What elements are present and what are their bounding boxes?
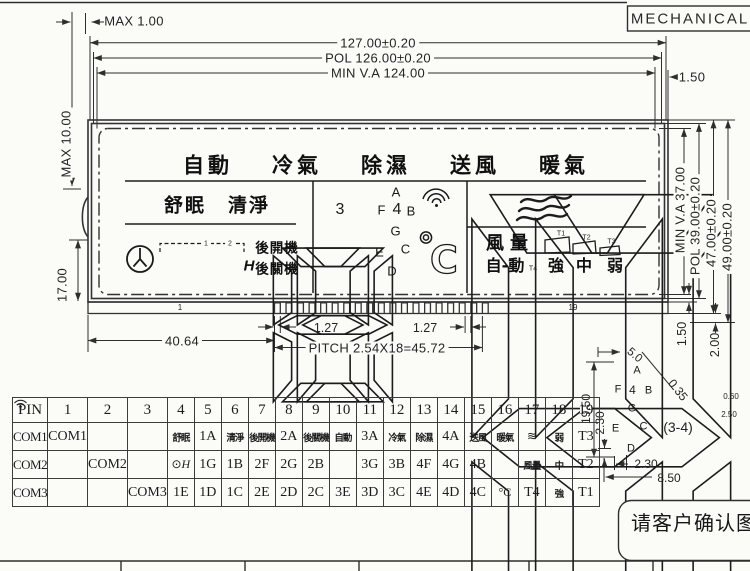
pin-table-row: COM1COM1舒眠1A清淨後開機2A後關機自動3A冷氣除濕4A送風暖氣≋弱T3 [13,423,600,451]
pin-header-cell: 18 [545,398,572,423]
pin-cell: 舒眠 [167,423,194,451]
pin-cell: 強 [545,479,572,507]
pin-header-cell: 12 [383,398,410,423]
dim-left-height: 17.00 [56,265,69,305]
pin-cell: 1A [194,423,221,451]
timer-tag-2: 2 [225,241,235,248]
pin-cell [127,423,167,451]
dim-bottom-gap-b: 2.00 [709,333,722,357]
pin-1-label: 1 [178,304,182,312]
dim-pol-height: POL 39.00±0.20 [689,174,702,278]
pin-header-cell: 8 [275,398,302,423]
t3-box [600,246,620,256]
dim-max-height: MAX 10.00 [60,107,73,180]
pin-header-cell: 5 [194,398,221,423]
t3-label: T3 [607,239,615,246]
wifi-icon [423,189,449,207]
pin-row-header: COM2 [13,451,48,479]
t1-box [545,237,570,253]
pin-header-cell: 14 [437,398,464,423]
dim-glass-height: 47.00±0.20 [705,196,718,270]
pin-row-header: COM3 [13,479,48,507]
pin-cell [48,451,88,479]
pin-cell: 後開機 [248,423,275,451]
detail-seg-e: E [612,424,619,435]
confirm-note: 请客户确认图 [631,513,750,533]
pin-cell: 除濕 [410,423,437,451]
detail-seg-c: C [640,422,648,433]
pin-cell: 1B [221,451,248,479]
dim-pol-width: POL 126.00±0.20 [322,52,434,65]
pin-cell: 4G [437,451,464,479]
pin-cell: T2 [572,451,599,479]
pin-cell: ≋ [518,423,545,451]
pin-cell: 1C [221,479,248,507]
pin-cell: 送風 [464,423,491,451]
pin-header-cell: 16 [491,398,518,423]
degree-celsius-icon: C [420,232,458,282]
dim-max-thickness: MAX 1.00 [104,15,163,28]
dim-overall-width: 127.00±0.20 [337,36,419,49]
mechanical-drawing-sheet: C MECHANICAL MAX 1.00 127.00±0.20 POL 12… [0,0,750,571]
fan-high-label: 強 [548,258,564,274]
t1-label: T1 [557,230,565,237]
dim-va-height: MIN V.A 37.00 [674,164,687,257]
pin-cell: 冷氣 [383,423,410,451]
pin-cell: ⊙H [167,451,194,479]
detail-name: (3-4) [663,420,693,434]
fan-volume-label: 風量 [486,235,534,253]
mode-fan: 送風 [450,156,500,177]
pin-cell: 4C [464,479,491,507]
clock-h-icon: ⊙H [171,457,190,471]
pin-cell: 4D [437,479,464,507]
pin-cell: T4 [518,479,545,507]
detail-width: 8.50 [657,472,680,484]
pin-cell: 1E [167,479,194,507]
seg-g-label: G [390,225,400,238]
pin-cell: 4A [437,423,464,451]
pin-header-cell: 15 [464,398,491,423]
pin-header-cell: 19 [572,398,599,423]
pin-cell: 3D [356,479,383,507]
detail-seg-b: B [645,386,652,397]
pin-row-header: COM1 [13,423,48,451]
timer-unit-h: H [244,259,255,274]
dim-top-right-gap: 1.50 [679,71,706,84]
pin-cell [127,451,167,479]
pin-cell: 3G [356,451,383,479]
fan-low-label: 弱 [607,258,623,274]
t2-label: T2 [582,234,590,241]
pin-cell [491,451,518,479]
pin-header-cell: 9 [302,398,329,423]
mode-dry: 除濕 [361,156,411,177]
detail-seg-g: G [628,404,637,415]
clock-icon [127,246,153,272]
t4-label: T4 [529,266,537,273]
digit3-tag: 3 [336,202,345,218]
pin-cell: COM3 [127,479,167,507]
sleep-label: 舒眠 [164,197,206,216]
seg-a-label: A [392,185,401,198]
pin-cell: 清淨 [221,423,248,451]
pin-cell [329,451,356,479]
pin-cell: 弱 [545,423,572,451]
pin-header-cell: 6 [221,398,248,423]
pin-cell [48,479,88,507]
pin-cell: COM2 [88,451,128,479]
mode-auto: 自動 [183,156,233,177]
dim-gap-b: 1.27 [413,321,437,334]
dim-pitch: PITCH 2.54X18=45.72 [306,341,449,354]
pin-cell: 中 [545,451,572,479]
pin-cell [88,423,128,451]
pin-cell: 2D [275,479,302,507]
celsius-letter: C [430,238,458,282]
pin-cell: 後關機 [302,423,329,451]
dim-tail-width: 40.64 [162,334,202,347]
pin-cell: 1D [194,479,221,507]
pin-cell: COM1 [48,423,88,451]
t2-box [573,241,596,254]
pin-cell: °C [491,479,518,507]
pin-cell: 4F [410,451,437,479]
pin-header-cell: 11 [356,398,383,423]
pin-table-row: COM2COM2⊙H1G1B2F2G2B3G3B4F4G4B風量中T2 [13,451,600,479]
mode-cool: 冷氣 [272,156,322,177]
pin-cell: 風量 [518,451,545,479]
seg-b-label: B [407,205,416,218]
dim-bottom-gap-a: 1.50 [676,322,689,346]
detail-seg-width: 2.30 [634,458,657,470]
pin-cell: T3 [572,423,599,451]
seg-f-label: F [378,203,386,216]
fan-waves-icon [517,196,571,220]
dim-total-height: 49.00±0.20 [721,200,734,274]
pin-header-cell: 13 [410,398,437,423]
pin-cell: 3C [383,479,410,507]
pin-cell [88,479,128,507]
pin-cell: 2A [275,423,302,451]
pin-cell: 2E [248,479,275,507]
pin-connector-strip [88,302,668,314]
pin-cell: 2C [302,479,329,507]
pin-header-cell: 3 [127,398,167,423]
edge-dim-b: 2.50 [721,411,737,419]
pin-header-cell: 7 [248,398,275,423]
fan-mid-label: 中 [576,258,592,274]
clean-label: 清淨 [228,197,270,216]
mode-heat: 暖氣 [539,156,589,177]
pin-cell: 4E [410,479,437,507]
pin-cell: 1G [194,451,221,479]
pin-cell: 3E [329,479,356,507]
off-timer-label: 後關機 [255,263,299,277]
seg-d-label: D [387,265,396,278]
pin-cell: 3A [356,423,383,451]
detail-seg-a: A [633,366,640,377]
sheet-title: MECHANICAL [631,11,749,26]
pin-header-cell: 4 [167,398,194,423]
detail-digit-tag: 4 [629,384,636,396]
pin-header-cell: 2 [88,398,128,423]
timer-tag-1: 1 [201,241,211,248]
seg-c-label: C [401,243,410,256]
pin-cell: 2F [248,451,275,479]
pin-cell: 自動 [329,423,356,451]
pin-cell: 4B [464,451,491,479]
pin-cell: T1 [572,479,599,507]
dim-gap-a: 1.27 [314,321,338,334]
digit4-tag: 4 [393,202,402,218]
pin-cell: 2G [275,451,302,479]
pin-cell: 3B [383,451,410,479]
pin-19-label: 19 [569,304,578,312]
timer-digit-2 [297,248,392,402]
pin-header-cell: 10 [329,398,356,423]
pin-cell: 2B [302,451,329,479]
fan-auto-label: 自-動 [486,258,525,274]
detail-seg-d: D [627,444,635,455]
deg-c-icon: °C [498,485,511,499]
detail-seg-f: F [615,384,622,395]
pin-header-cell: 1 [48,398,88,423]
dim-va-width: MIN V.A 124.00 [328,67,428,80]
pin-table-row: COM3COM31E1D1C2E2D2C3E3D3C4E4D4C°CT4強T1 [13,479,600,507]
seg-e-label: E [375,246,384,259]
edge-dim-a: 0.60 [723,393,739,401]
fan-waves-icon: ≋ [527,429,537,443]
pin-cell: 暖氣 [491,423,518,451]
on-timer-label: 後開機 [255,242,299,256]
pin-header-cell: 17 [518,398,545,423]
pin-table: PIN12345678910111213141516171819COM1COM1… [12,397,600,507]
